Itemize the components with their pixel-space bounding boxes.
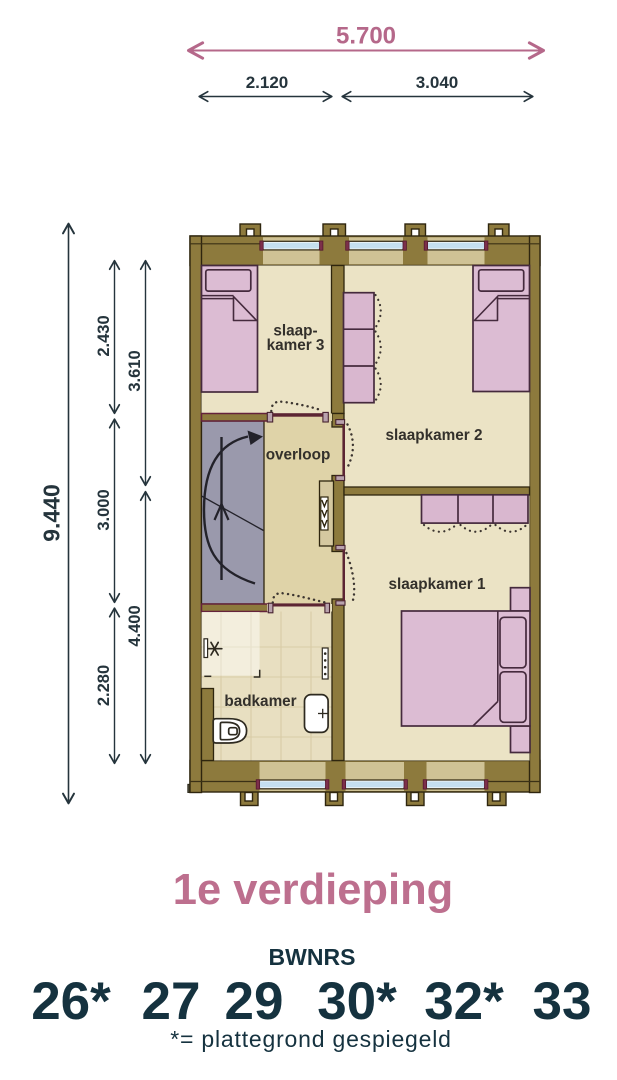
svg-text:26*: 26* [31, 972, 111, 1031]
svg-text:slaapkamer 2: slaapkamer 2 [386, 427, 483, 444]
svg-text:*= plattegrond gespiegeld: *= plattegrond gespiegeld [170, 1026, 452, 1052]
svg-text:1e verdieping: 1e verdieping [173, 866, 453, 914]
svg-text:30*: 30* [317, 972, 397, 1031]
svg-text:2.120: 2.120 [246, 73, 289, 92]
svg-text:5.700: 5.700 [336, 23, 396, 50]
svg-text:27: 27 [142, 972, 201, 1031]
svg-text:badkamer: badkamer [224, 693, 296, 710]
svg-text:BWNRS: BWNRS [269, 944, 356, 970]
svg-text:slaapkamer 1: slaapkamer 1 [389, 576, 486, 593]
svg-text:2.430: 2.430 [95, 315, 113, 356]
svg-text:2.280: 2.280 [95, 665, 113, 706]
svg-text:32*: 32* [424, 972, 504, 1031]
svg-text:3.000: 3.000 [95, 489, 113, 530]
svg-text:29: 29 [225, 972, 284, 1031]
svg-text:9.440: 9.440 [39, 484, 65, 542]
svg-text:3.610: 3.610 [126, 350, 144, 391]
svg-text:3.040: 3.040 [416, 73, 459, 92]
svg-text:4.400: 4.400 [126, 605, 144, 646]
svg-text:overloop: overloop [266, 447, 331, 464]
svg-text:33: 33 [533, 972, 592, 1031]
svg-text:kamer 3: kamer 3 [267, 337, 325, 354]
